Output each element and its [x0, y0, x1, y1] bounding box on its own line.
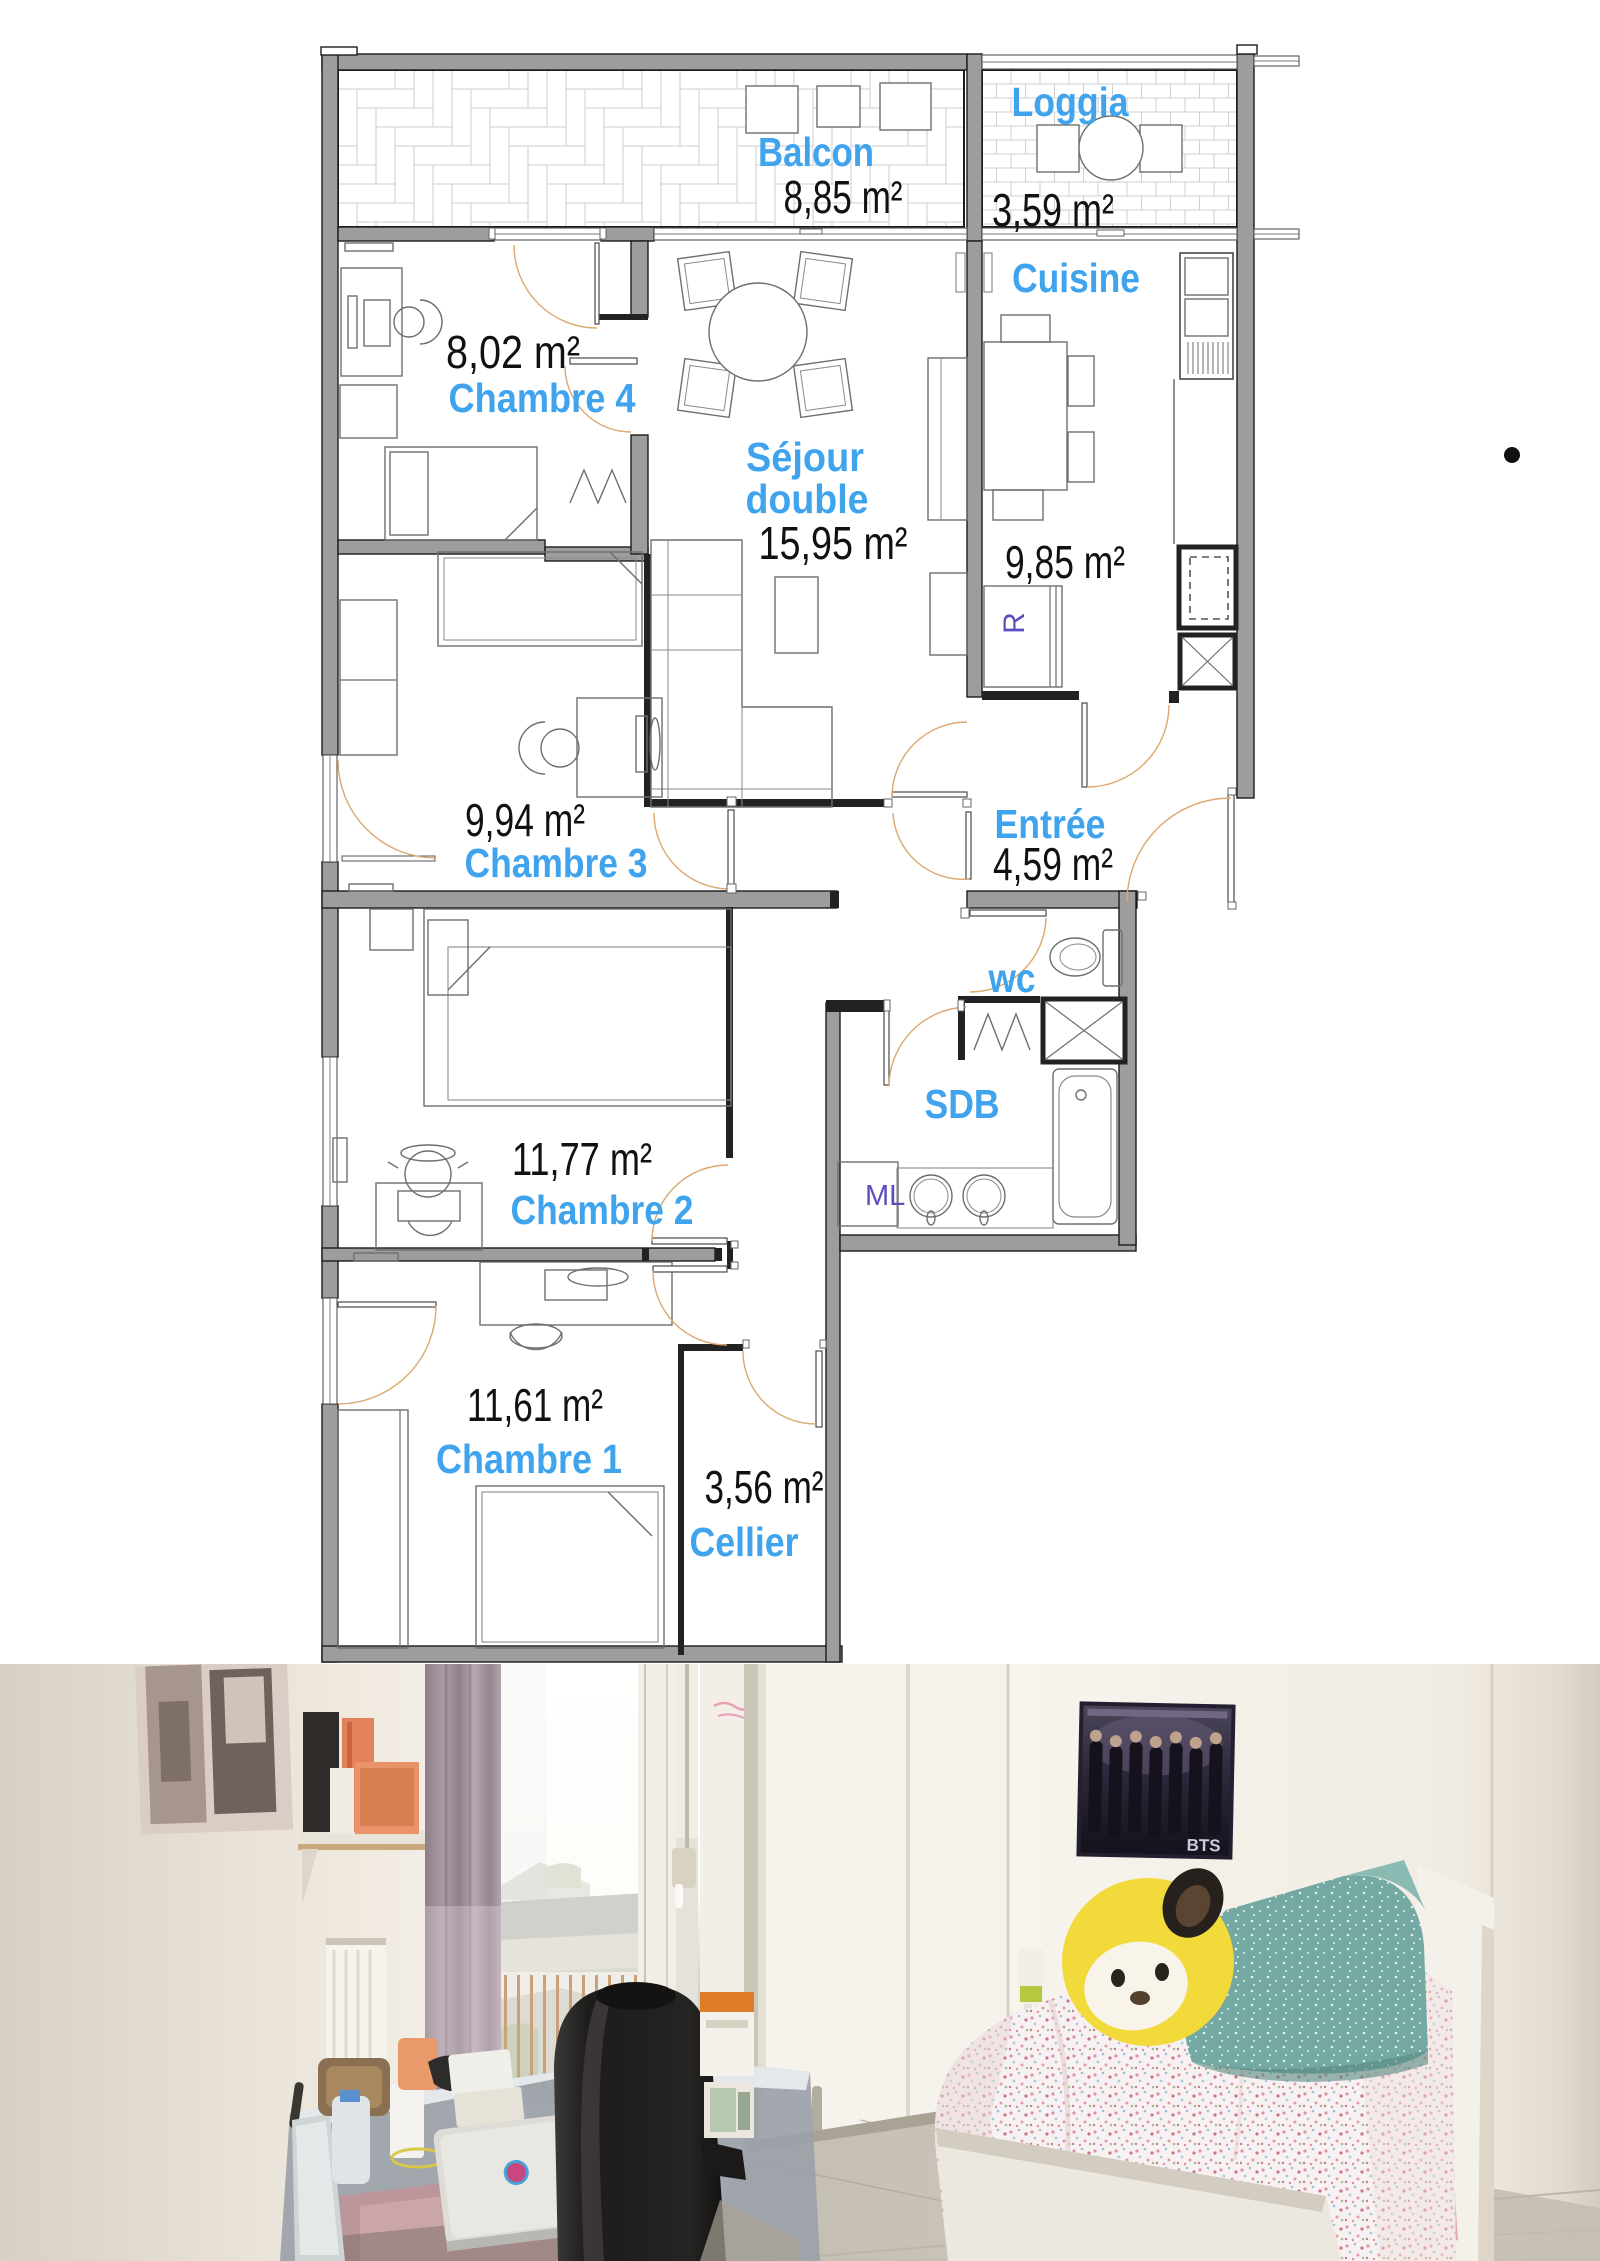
svg-text:3,59 m²: 3,59 m² — [992, 184, 1114, 236]
svg-text:8,85 m²: 8,85 m² — [784, 171, 903, 223]
svg-text:Chambre 1: Chambre 1 — [436, 1436, 622, 1482]
svg-text:9,85 m²: 9,85 m² — [1005, 536, 1125, 588]
svg-text:Chambre 3: Chambre 3 — [465, 840, 648, 886]
svg-text:Loggia: Loggia — [1012, 79, 1130, 125]
svg-text:11,77 m²: 11,77 m² — [512, 1133, 652, 1185]
svg-text:R: R — [998, 612, 1031, 634]
svg-text:8,02 m²: 8,02 m² — [446, 326, 580, 378]
svg-text:BTS: BTS — [1186, 1836, 1220, 1856]
svg-text:4,59 m²: 4,59 m² — [993, 838, 1113, 890]
svg-text:11,61 m²: 11,61 m² — [467, 1379, 603, 1431]
svg-text:Chambre 2: Chambre 2 — [511, 1187, 694, 1233]
svg-text:Balcon: Balcon — [758, 129, 874, 175]
svg-text:Chambre 4: Chambre 4 — [449, 375, 636, 421]
svg-text:Séjour: Séjour — [746, 434, 864, 480]
svg-text:3,56 m²: 3,56 m² — [705, 1461, 824, 1513]
svg-text:9,94 m²: 9,94 m² — [465, 794, 585, 846]
svg-text:ML: ML — [865, 1180, 905, 1212]
svg-text:Cellier: Cellier — [690, 1519, 799, 1565]
svg-text:wc: wc — [988, 955, 1036, 1001]
svg-text:double: double — [746, 476, 869, 522]
svg-text:Cuisine: Cuisine — [1012, 255, 1140, 301]
svg-text:SDB: SDB — [925, 1081, 1000, 1127]
svg-text:15,95 m²: 15,95 m² — [759, 517, 908, 569]
